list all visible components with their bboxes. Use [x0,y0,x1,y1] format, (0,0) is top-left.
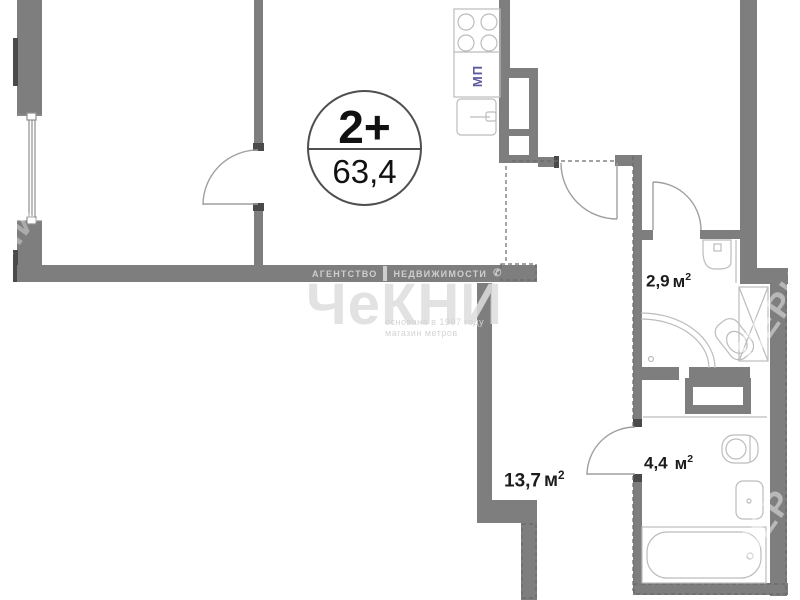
corner-shower-icon [641,313,715,368]
wall-interior-room-upper [254,0,263,144]
stove-burners-icon [458,14,497,51]
room-count-label: 2+ [338,92,390,148]
appliance-label: МП [462,58,492,94]
wall-divider-lower [633,475,642,592]
door-jamb [253,143,264,151]
toilet-icon [722,435,758,463]
wall-bath-divider-left [633,367,679,380]
area-unit: м [544,470,558,491]
wall-hallway-stub [521,523,537,600]
wall-exterior-left-upper [17,0,42,116]
wall-hallway-corner [477,500,537,523]
door-arc-bath-large [587,427,635,475]
area-unit-sup: 2 [558,469,565,482]
room-area-bathroom-large: 4,4м2 [644,453,693,474]
area-unit: м [675,454,688,473]
room-area-hallway: 13,7м2 [504,469,565,492]
apartment-type-badge: 2+ 63,4 [307,90,422,206]
area-value: 13,7 [504,470,541,491]
wall-interior-room-lower [254,211,263,267]
area-unit: м [673,272,686,291]
door-jamb [633,474,642,482]
wall-divider-upper [633,155,642,427]
corner-sink-icon [703,240,731,269]
door-arc-entry [561,163,617,219]
area-value: 4,4 [644,454,668,473]
wall-bath-small-top-left [633,230,653,240]
room-area-bathroom-small: 2,9м2 [646,271,691,292]
door-jamb [633,419,642,427]
tagline-line: основана в 1997 году [385,317,484,328]
door-arc-bath-small [653,182,701,230]
wall-bottom-bath [633,583,788,595]
shaft-niche [509,136,529,155]
door-jamb [554,156,559,168]
duct-niche [693,387,743,405]
area-value: 2,9 [646,272,670,291]
wall-kitchen-right [499,0,510,78]
brand-tagline: основана в 1997 году магазин метров [385,317,484,339]
wall-bath-small-top-right [700,230,740,239]
door-arc-room [203,150,258,205]
wall-exterior-right-upper [740,0,757,270]
floor-plan: 2+ 63,4 МП 2,9м2 4,4м2 13,7м2 АГЕНТСТВО … [0,0,800,600]
area-unit-sup: 2 [685,271,691,283]
kitchen-sink-icon [457,99,496,135]
edge-watermark: ПЕР [726,482,800,566]
tagline-line: магазин метров [385,328,484,339]
total-area-label: 63,4 [332,150,396,204]
door-jamb [253,203,264,211]
wall-tick-upper [13,38,18,86]
area-unit-sup: 2 [687,453,693,465]
shaft-niche [509,78,529,129]
